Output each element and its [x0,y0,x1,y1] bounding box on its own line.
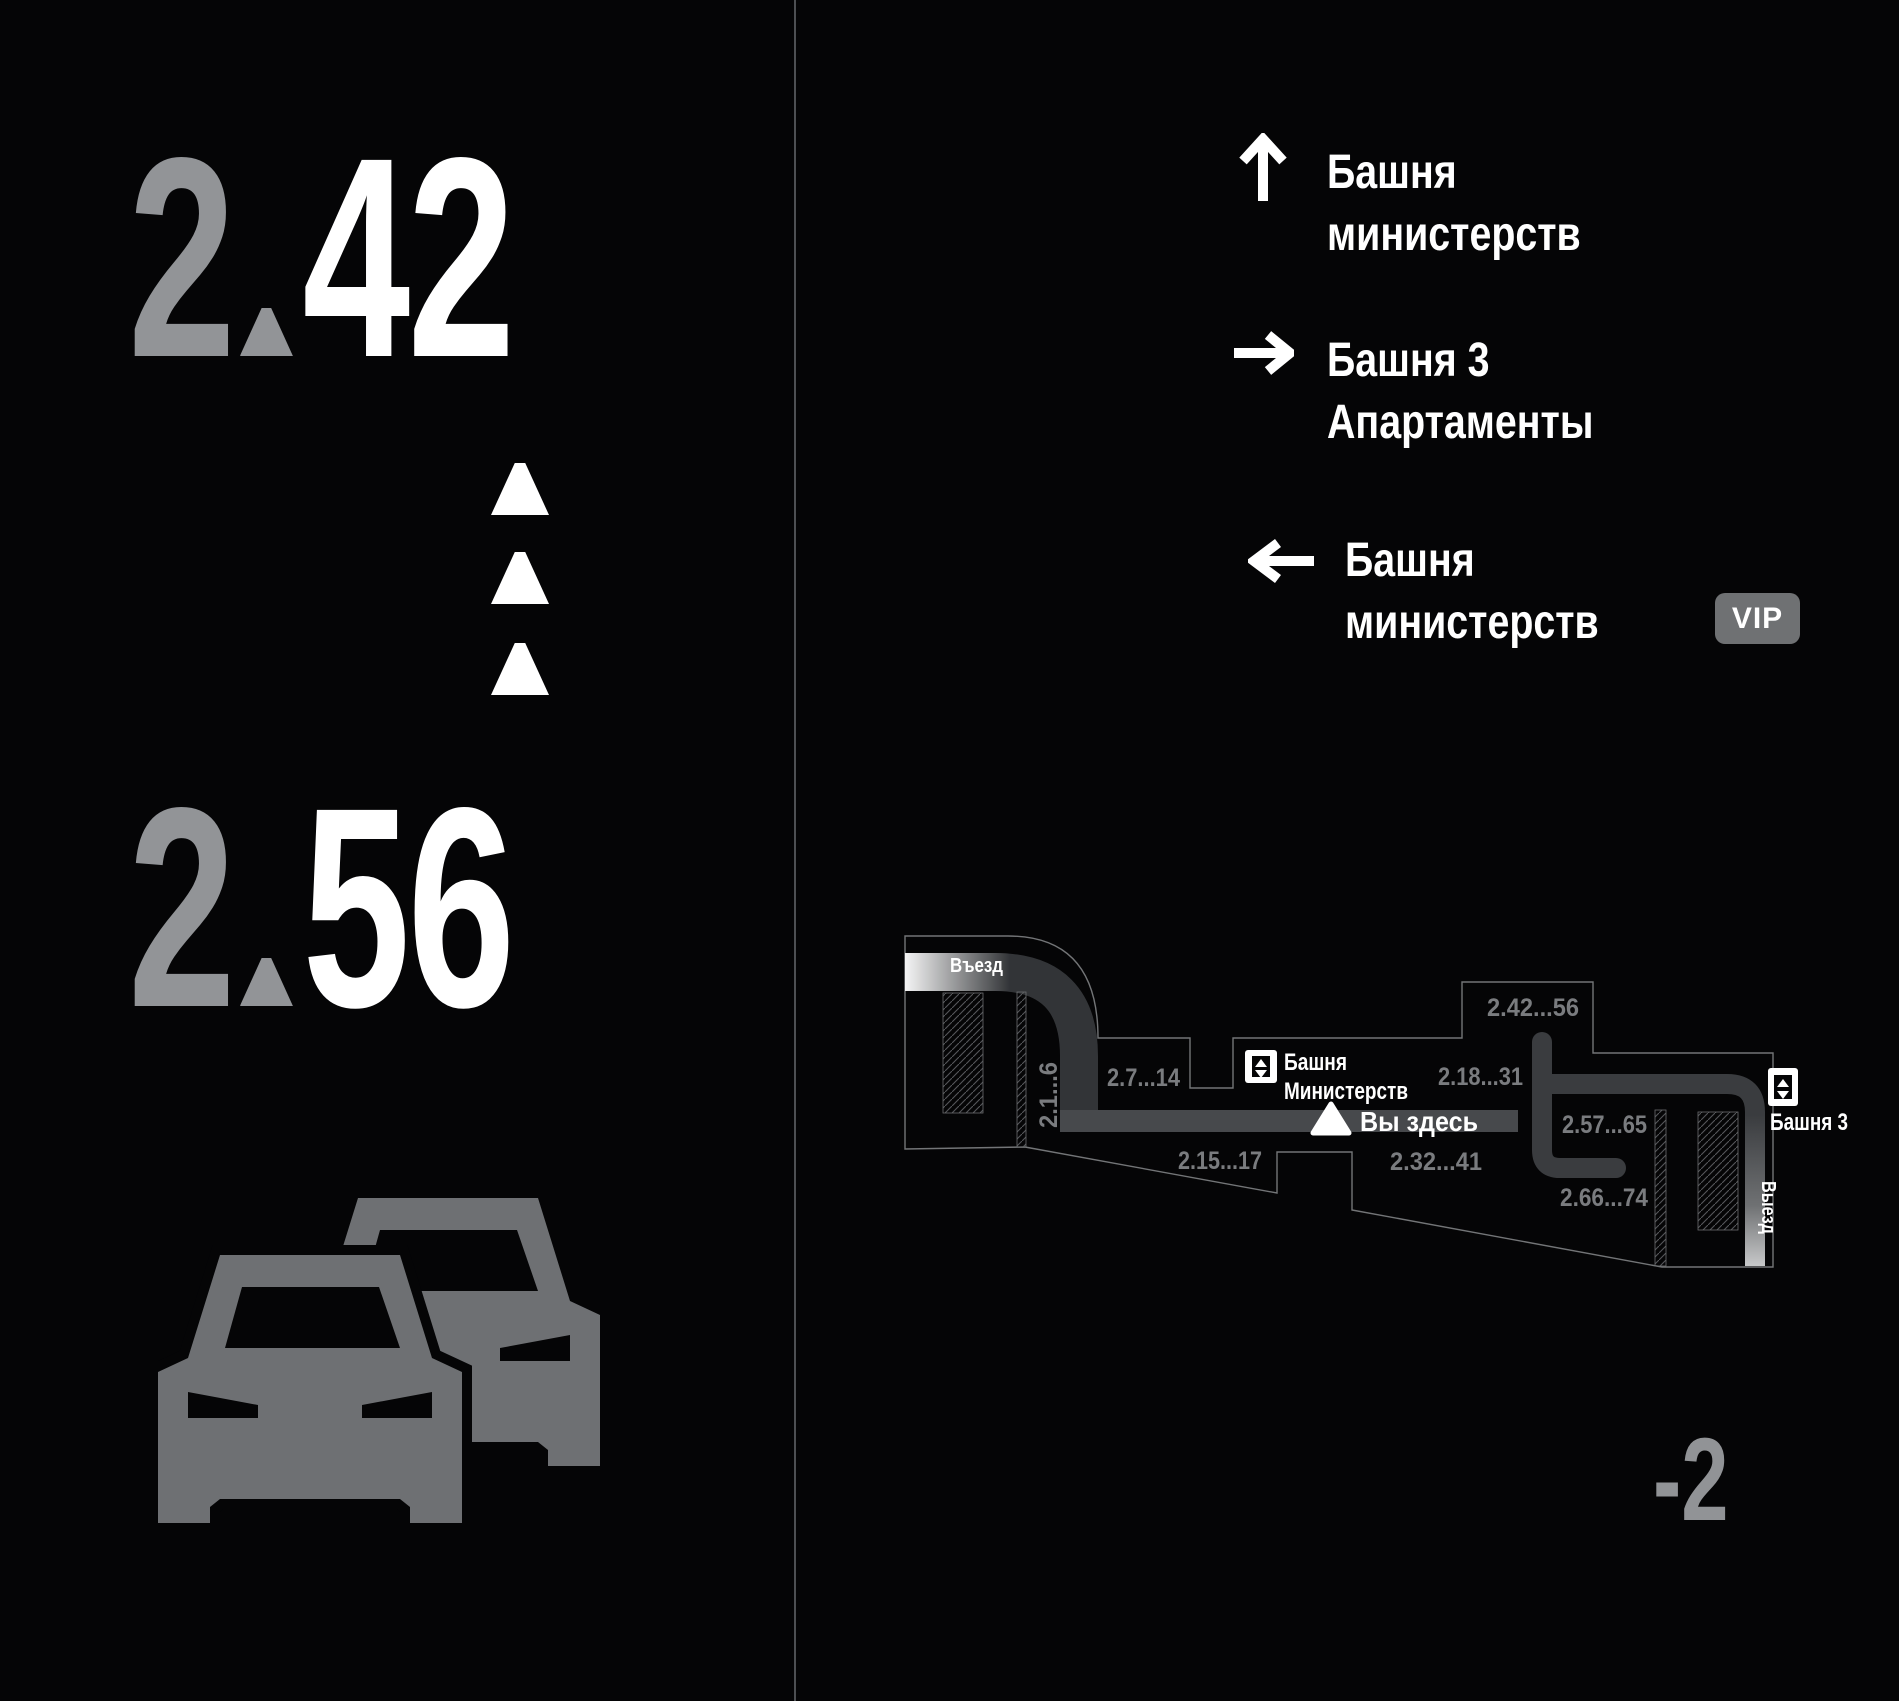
elevator-icon [1245,1050,1277,1083]
front-car-icon [158,1255,462,1523]
direction-line: Башня [1345,530,1599,592]
zone-range-top: 242 [128,116,513,401]
zone-top-fraction: 42 [302,99,512,417]
hatched-area [943,993,983,1113]
direction-line: Апартаменты [1327,392,1593,454]
elevator-ministries-label-1: Башня [1284,1049,1347,1076]
zone-label-2-18-31: 2.18...31 [1438,1063,1523,1091]
direction-tower3-apartments: Башня 3 Апартаменты [1327,330,1593,454]
zone-label-2-42-56: 2.42...56 [1487,994,1579,1022]
hatched-area [1698,1112,1738,1230]
zone-bottom-fraction: 56 [302,749,512,1067]
tower3-label: Башня 3 [1770,1109,1848,1136]
zone-label-2-1-6: 2.1...6 [1035,1062,1063,1128]
direction-line: министерств [1345,592,1599,654]
you-are-here-label: Вы здесь [1360,1106,1478,1137]
elevator-ministries-label-2: Министерств [1284,1078,1408,1105]
parking-sign: 242 256 Башня министерств Башня 3 [0,0,1899,1701]
vip-badge: VIP [1715,593,1800,644]
up-triangle-icon [491,552,549,604]
floor-map: Въезд Выезд Башня Министерств Башня 3 Вы… [900,930,1860,1275]
direction-line: министерств [1327,204,1581,266]
arrow-right-icon [1232,329,1294,377]
arrow-up-icon [1238,133,1288,203]
zone-range-bottom: 256 [128,766,513,1051]
branch-road [1542,1042,1616,1168]
direction-line: Башня [1327,142,1581,204]
elevator-icon [1768,1068,1798,1106]
zone-bottom-whole: 2 [128,749,233,1067]
up-triangle-icon [491,463,549,515]
direction-tower-ministries-vip: Башня министерств [1345,530,1599,654]
entrance-label: Въезд [950,955,1003,977]
panel-divider [794,0,796,1701]
zone-label-2-32-41: 2.32...41 [1390,1148,1482,1176]
up-triangle-icon [491,643,549,695]
decimal-triangle-icon [240,308,293,356]
hatched-area [1655,1110,1666,1266]
zone-top-whole: 2 [128,99,233,417]
direction-line: Башня 3 [1327,330,1593,392]
zone-label-2-7-14: 2.7...14 [1107,1064,1180,1092]
zone-label-2-66-74: 2.66...74 [1560,1184,1648,1212]
arrow-left-icon [1248,539,1316,583]
direction-tower-ministries: Башня министерств [1327,142,1581,266]
exit-label: Выезд [1757,1181,1779,1234]
hatched-area [1017,992,1026,1147]
cars-icon [158,1195,608,1525]
zone-label-2-57-65: 2.57...65 [1562,1111,1647,1139]
floor-number: -2 [1653,1421,1729,1539]
zone-label-2-15-17: 2.15...17 [1178,1147,1262,1175]
decimal-triangle-icon [240,958,293,1006]
